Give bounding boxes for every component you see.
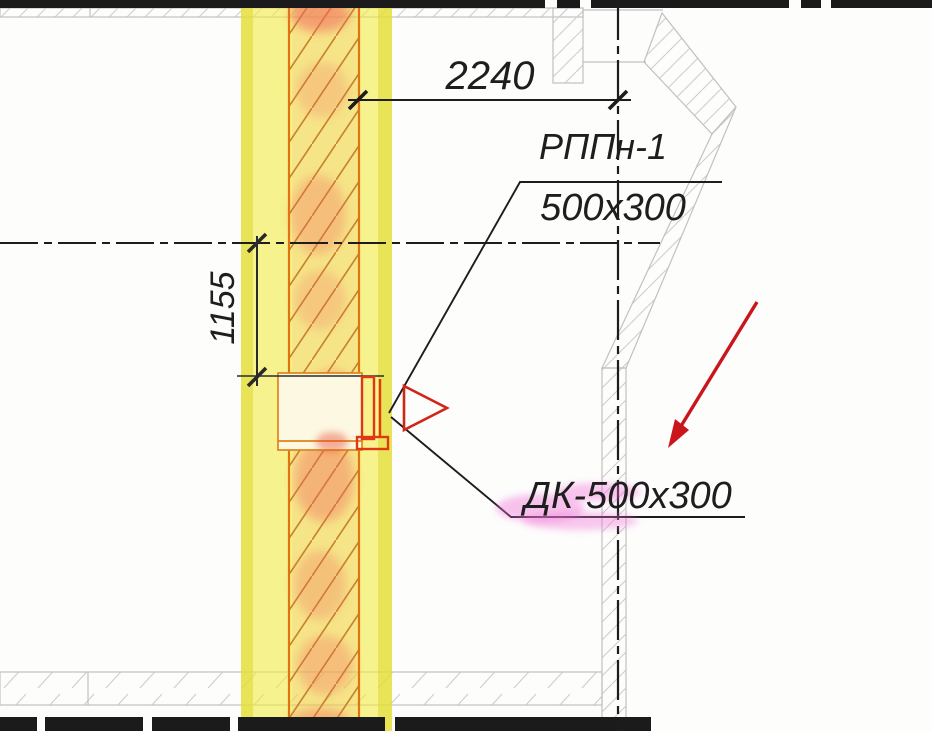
paper-background bbox=[0, 0, 932, 731]
marker-blob bbox=[297, 635, 353, 695]
highlighted-wall bbox=[241, 0, 392, 731]
bottom-wall-bar bbox=[45, 717, 143, 731]
marker-blob bbox=[294, 270, 346, 330]
top-wall-bar bbox=[591, 0, 789, 8]
corner-notch-wall bbox=[553, 8, 583, 83]
duct-label: ДК-500х300 bbox=[520, 475, 732, 517]
bottom-wall-bar bbox=[152, 717, 230, 731]
grille-size-label: 500x300 bbox=[540, 187, 686, 229]
vertical-wall-strip bbox=[602, 368, 626, 731]
top-wall-bar bbox=[801, 0, 821, 8]
grille-name-label: РППн-1 bbox=[539, 126, 667, 167]
drawing-canvas: 2240 1155 РППн-1 500x300 ДК-500х300 bbox=[0, 0, 932, 731]
top-wall-bar bbox=[831, 0, 932, 8]
dimension-2240-label: 2240 bbox=[445, 54, 535, 98]
bottom-wall-bar bbox=[0, 717, 37, 731]
marker-edge-left bbox=[241, 0, 253, 731]
marker-blob bbox=[296, 62, 348, 118]
top-wall-bar bbox=[0, 0, 545, 8]
drawing-page: 2240 1155 РППн-1 500x300 ДК-500х300 bbox=[0, 0, 932, 731]
marker-blob bbox=[294, 550, 346, 620]
marker-edge-right bbox=[378, 0, 392, 731]
bottom-wall-bar bbox=[238, 717, 385, 731]
dimension-1155-label: 1155 bbox=[204, 271, 242, 344]
top-wall-bar bbox=[557, 0, 580, 8]
bottom-wall-bar bbox=[395, 717, 651, 731]
red-smudge bbox=[316, 432, 348, 452]
